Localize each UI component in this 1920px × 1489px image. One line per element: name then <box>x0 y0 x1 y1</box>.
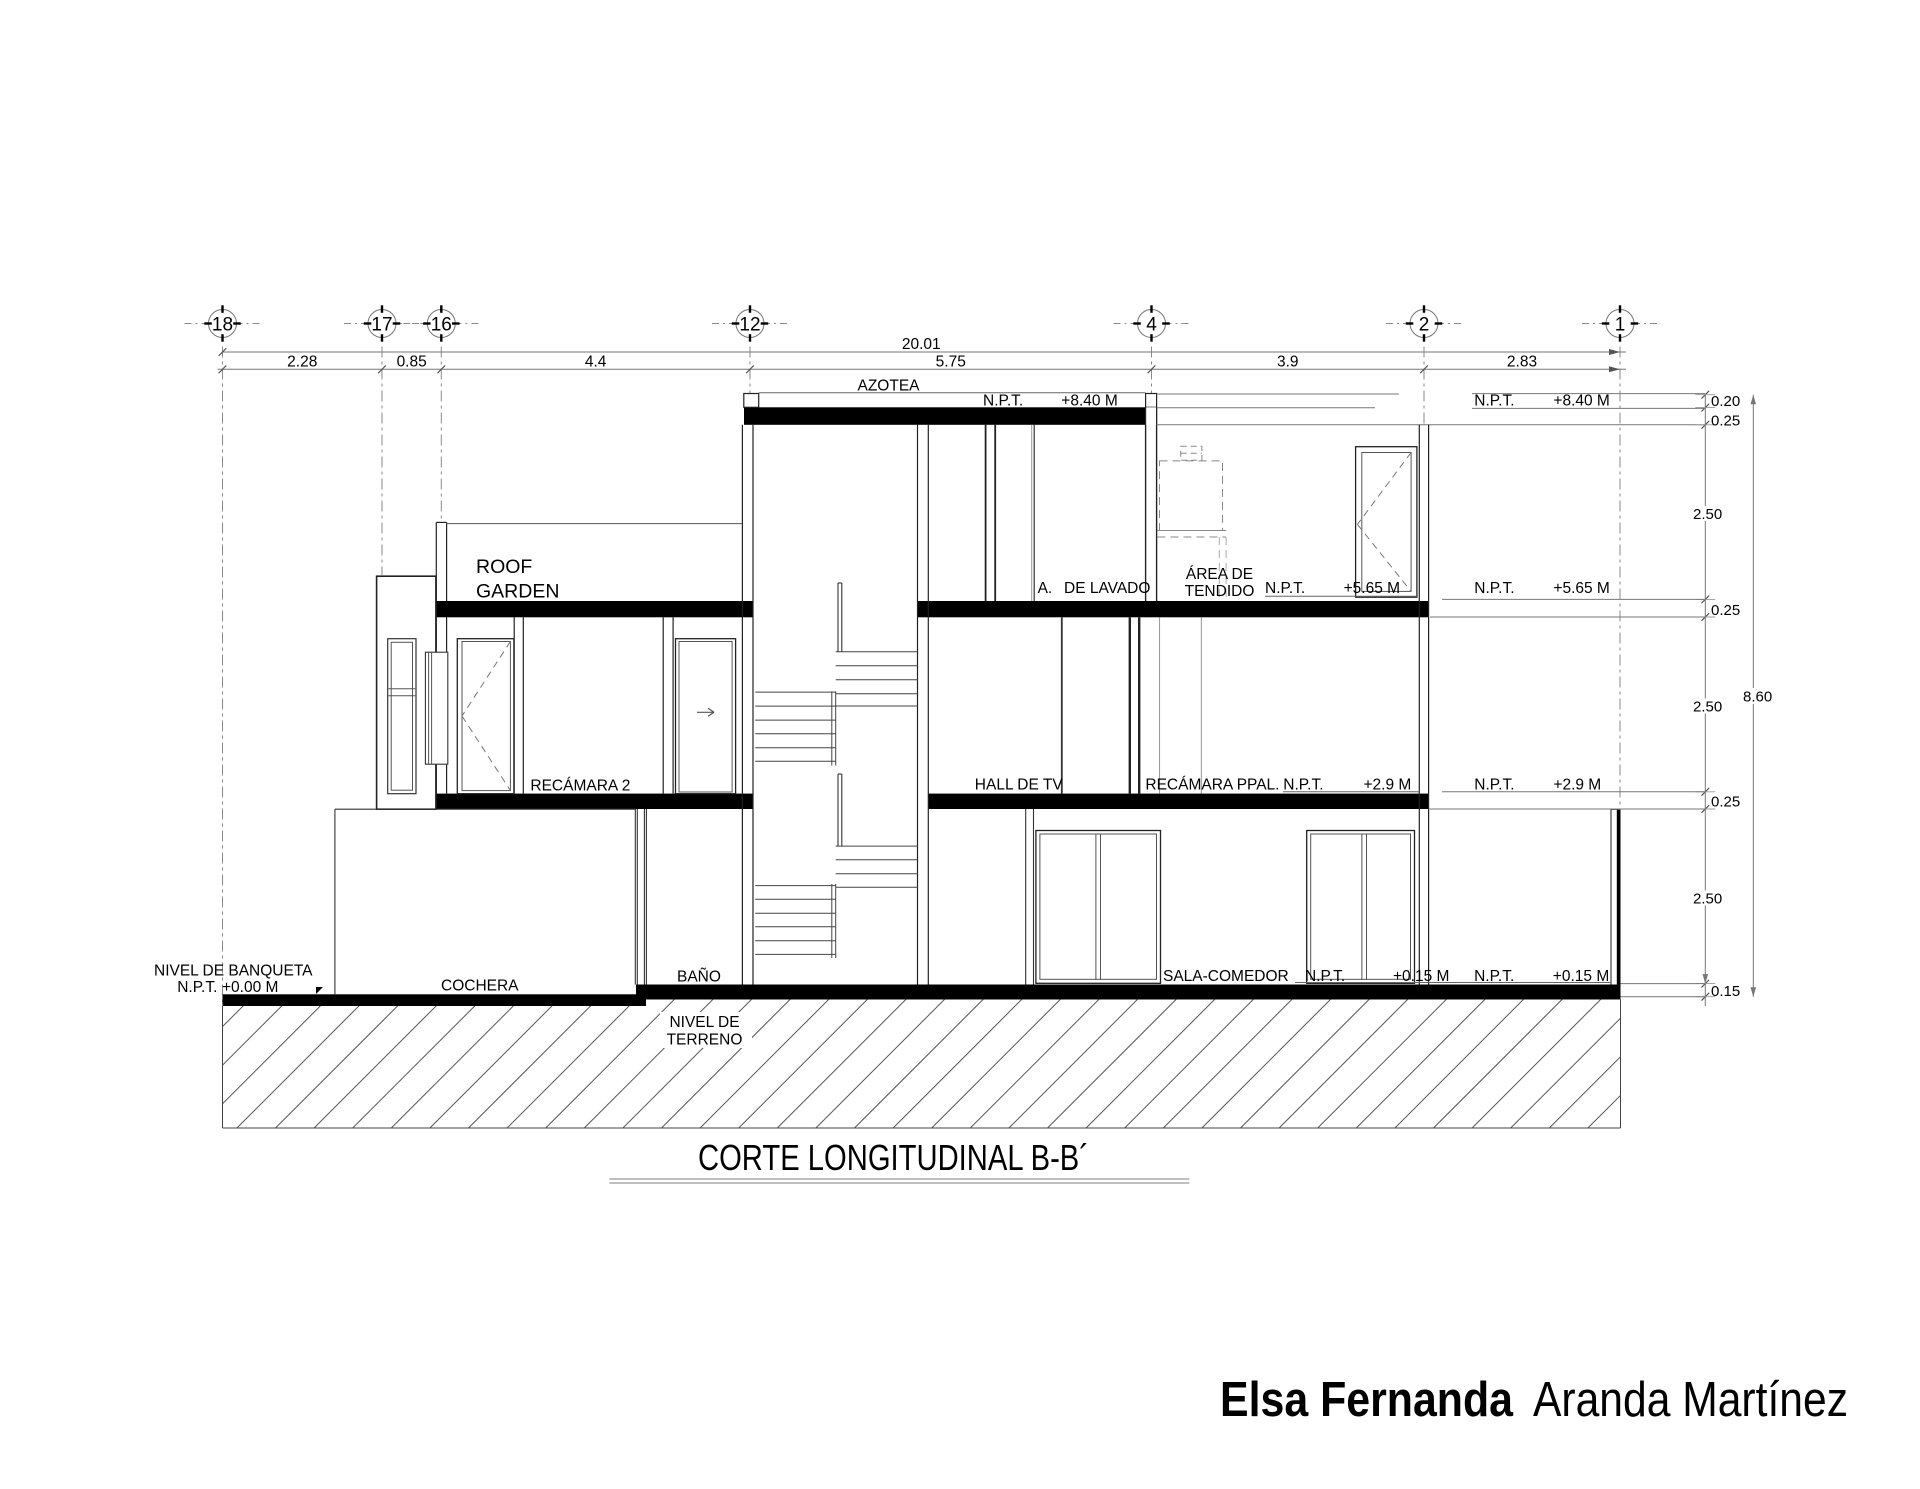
svg-text:0.15: 0.15 <box>1711 983 1740 1000</box>
svg-text:BAÑO: BAÑO <box>677 969 721 986</box>
svg-text:SALA-COMEDOR: SALA-COMEDOR <box>1163 968 1289 985</box>
svg-text:HALL DE TV: HALL DE TV <box>975 777 1064 794</box>
svg-text:5.75: 5.75 <box>936 353 966 370</box>
svg-text:0.25: 0.25 <box>1711 602 1740 619</box>
svg-text:+0.15 M: +0.15 M <box>1553 968 1609 985</box>
svg-text:ROOF: ROOF <box>476 556 532 578</box>
svg-text:DE LAVADO: DE LAVADO <box>1064 580 1150 597</box>
svg-text:NIVEL DE: NIVEL DE <box>669 1014 739 1031</box>
svg-text:20.01: 20.01 <box>902 336 941 353</box>
svg-text:+0.00 M: +0.00 M <box>222 979 278 996</box>
svg-text:12: 12 <box>739 315 760 336</box>
svg-text:2.50: 2.50 <box>1693 891 1722 908</box>
svg-text:4.4: 4.4 <box>585 353 607 370</box>
svg-text:3.9: 3.9 <box>1277 353 1299 370</box>
svg-text:16: 16 <box>431 315 452 336</box>
svg-text:+0.15 M: +0.15 M <box>1393 968 1449 985</box>
svg-text:N.P.T.: N.P.T. <box>1283 777 1323 794</box>
svg-text:Elsa Fernanda: Elsa Fernanda <box>1220 1372 1513 1427</box>
svg-text:0.25: 0.25 <box>1711 413 1740 430</box>
svg-text:N.P.T.: N.P.T. <box>1474 393 1514 410</box>
svg-text:2.50: 2.50 <box>1693 506 1722 523</box>
svg-text:2.50: 2.50 <box>1693 699 1722 716</box>
svg-text:17: 17 <box>371 315 392 336</box>
svg-text:RECÁMARA PPAL.: RECÁMARA PPAL. <box>1145 777 1279 794</box>
svg-text:Aranda Martínez: Aranda Martínez <box>1533 1372 1848 1427</box>
svg-text:+2.9 M: +2.9 M <box>1364 777 1412 794</box>
svg-text:N.P.T.: N.P.T. <box>983 393 1023 410</box>
svg-text:+8.40 M: +8.40 M <box>1061 393 1117 410</box>
svg-text:NIVEL DE BANQUETA: NIVEL DE BANQUETA <box>154 963 313 980</box>
svg-text:N.P.T.: N.P.T. <box>1265 580 1305 597</box>
svg-text:N.P.T.: N.P.T. <box>1474 968 1514 985</box>
svg-text:2.28: 2.28 <box>287 353 317 370</box>
svg-text:TENDIDO: TENDIDO <box>1185 583 1255 600</box>
svg-text:N.P.T.: N.P.T. <box>1474 580 1514 597</box>
svg-text:N.P.T.: N.P.T. <box>1474 777 1514 794</box>
svg-text:8.60: 8.60 <box>1743 689 1772 706</box>
svg-text:1: 1 <box>1615 315 1626 336</box>
svg-text:A.: A. <box>1038 580 1053 597</box>
svg-text:AZOTEA: AZOTEA <box>857 378 920 395</box>
svg-text:N.P.T.: N.P.T. <box>1305 968 1345 985</box>
svg-text:CORTE LONGITUDINAL B-B´: CORTE LONGITUDINAL B-B´ <box>698 1137 1089 1178</box>
svg-text:N.P.T.: N.P.T. <box>177 979 217 996</box>
svg-text:2.83: 2.83 <box>1507 353 1537 370</box>
svg-text:4: 4 <box>1146 315 1157 336</box>
svg-text:RECÁMARA 2: RECÁMARA 2 <box>530 778 630 795</box>
svg-text:0.85: 0.85 <box>397 353 427 370</box>
svg-text:2: 2 <box>1419 315 1430 336</box>
svg-text:GARDEN: GARDEN <box>476 581 559 603</box>
svg-text:0.25: 0.25 <box>1711 794 1740 811</box>
svg-text:ÁREA DE: ÁREA DE <box>1186 566 1253 583</box>
svg-text:+5.65 M: +5.65 M <box>1344 580 1400 597</box>
svg-text:COCHERA: COCHERA <box>441 977 519 994</box>
svg-text:+2.9 M: +2.9 M <box>1553 777 1601 794</box>
svg-text:+5.65 M: +5.65 M <box>1553 580 1609 597</box>
svg-text:+8.40 M: +8.40 M <box>1553 393 1609 410</box>
svg-text:18: 18 <box>212 315 233 336</box>
svg-text:0.20: 0.20 <box>1711 393 1740 410</box>
svg-text:TERRENO: TERRENO <box>667 1032 743 1049</box>
